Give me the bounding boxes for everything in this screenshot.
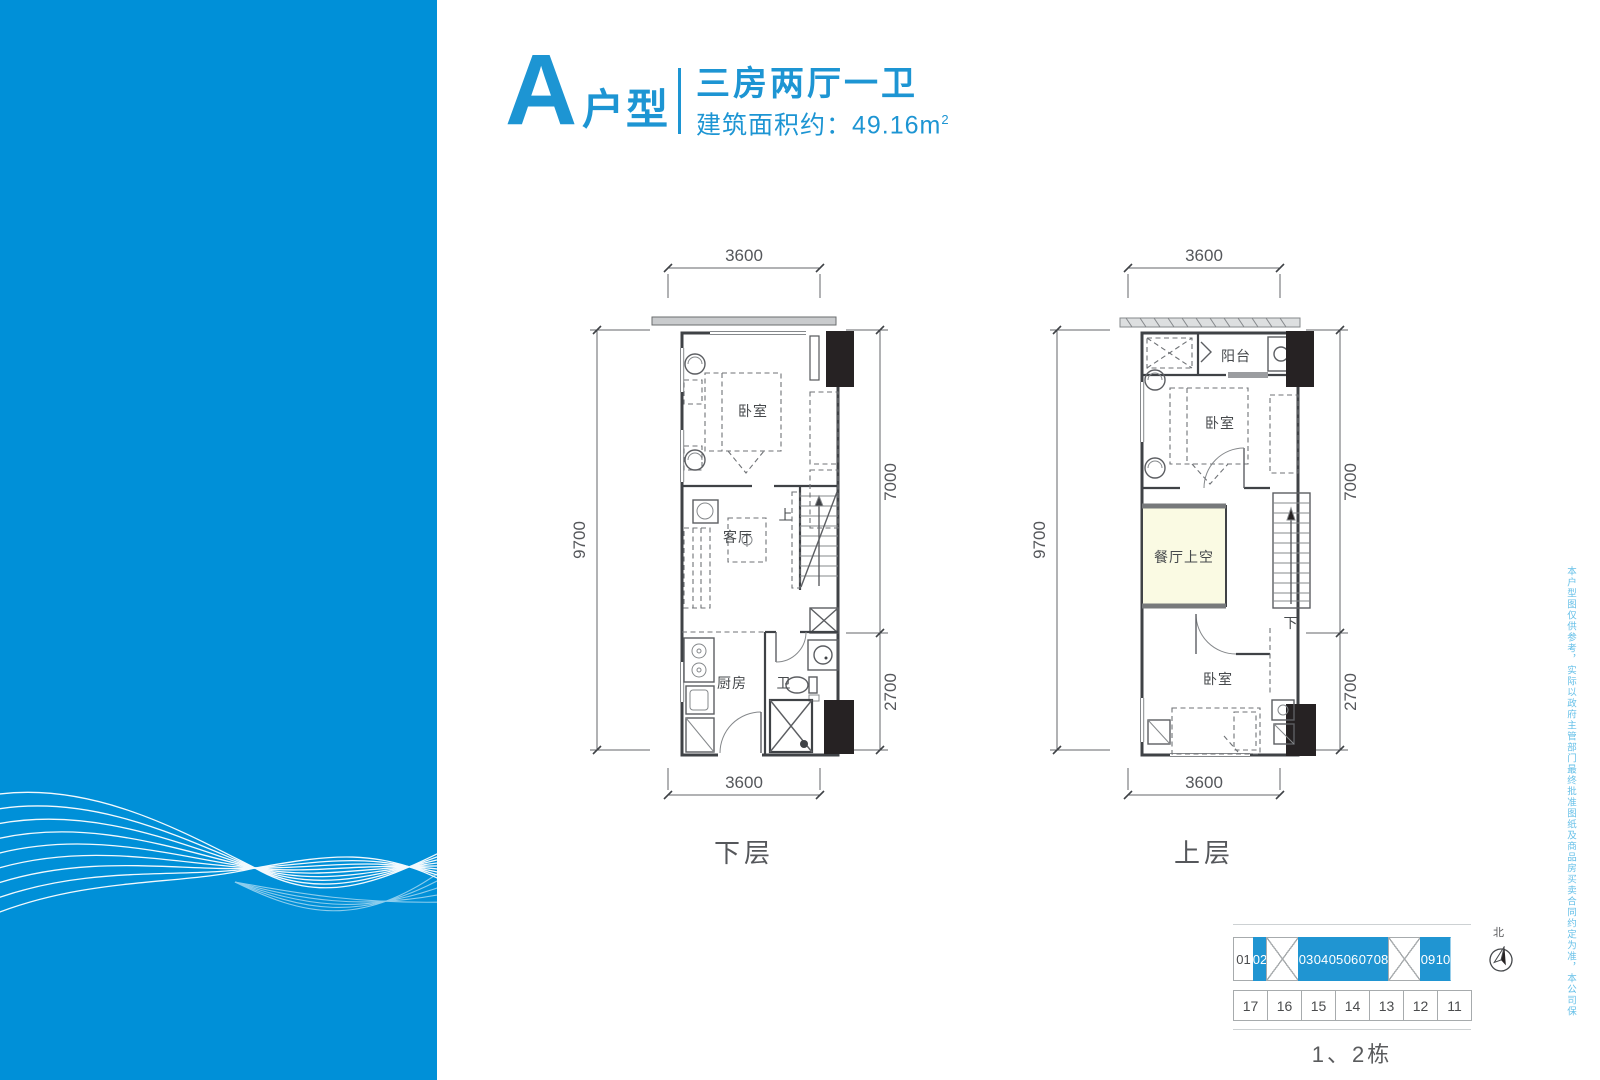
dim-bottom-lower: 3600 (664, 768, 824, 799)
keyplan-bottom-rule (1233, 1029, 1471, 1030)
shaft-bottom-right (1286, 704, 1316, 756)
unit-area: 建筑面积约：49.16m2 (696, 106, 950, 139)
plan-body-lower: 上 (652, 317, 854, 757)
dim-value: 2700 (881, 673, 900, 711)
keyplan-caption: 1、2栋 (1233, 1037, 1471, 1069)
unit-cell-14: 14 (1335, 990, 1370, 1021)
room-label-living: 客厅 (723, 529, 753, 545)
north-arrow: 北 (1479, 926, 1523, 982)
floor-label-upper: 上层 (1174, 838, 1234, 868)
bedroom-bottom-furniture (1148, 628, 1294, 754)
shaft-top-right (1286, 331, 1314, 387)
dim-right-upper: 7000 2700 (1306, 326, 1360, 754)
shaft-top-right (826, 331, 854, 387)
room-label-stair-up: 上 (779, 507, 794, 523)
room-label-kitchen: 厨房 (717, 675, 747, 691)
dim-left-upper: 9700 (1030, 326, 1110, 754)
dim-top-lower: 3600 (664, 246, 824, 298)
unit-cell-08: 08 (1373, 937, 1389, 981)
unit-cell-06: 06 (1343, 937, 1359, 981)
dim-right-lower: 7000 2700 (846, 326, 900, 754)
dim-value: 3600 (725, 773, 763, 792)
unit-cell-15: 15 (1301, 990, 1336, 1021)
shaft-bottom-right (824, 700, 854, 754)
unit-cell-03: 03 (1298, 937, 1314, 981)
disclaimer-vertical-text: 本户型图仅供参考，实际以政府主管部门最终批准图纸及商品房买卖合同约定为准，本公司… (1563, 566, 1577, 1018)
unit-cell-01: 01 (1233, 937, 1254, 981)
unit-cell-16: 16 (1267, 990, 1302, 1021)
dim-value: 3600 (1185, 246, 1223, 265)
unit-cell-12: 12 (1403, 990, 1438, 1021)
entry-door-leaf (810, 336, 819, 380)
area-superscript: 2 (941, 112, 949, 127)
dim-value: 7000 (1341, 463, 1360, 501)
duct-box (810, 608, 838, 633)
room-label-bath: 卫 (777, 675, 792, 691)
floor-plan-lower: 3600 9700 7000 2700 3600 (560, 230, 960, 870)
dim-value: 9700 (570, 521, 589, 559)
unit-cell-04: 04 (1313, 937, 1329, 981)
dim-value: 3600 (1185, 773, 1223, 792)
keyplan-top-rule (1233, 924, 1471, 925)
dim-value: 2700 (1341, 673, 1360, 711)
unit-cell-11: 11 (1437, 990, 1472, 1021)
eave (1120, 318, 1300, 327)
wave-decoration (0, 740, 437, 1080)
unit-cell-10: 10 (1435, 937, 1451, 981)
dim-value: 3600 (725, 246, 763, 265)
shower-box (770, 700, 812, 752)
stairs-down (1273, 493, 1310, 608)
unit-rooms-description: 三房两厅一卫 (696, 66, 918, 102)
stairs-up (800, 486, 838, 590)
canopy (652, 317, 836, 325)
dim-bottom-upper: 3600 (1124, 768, 1284, 799)
kitchen-fixtures (684, 638, 714, 752)
dim-value: 9700 (1030, 521, 1049, 559)
brand-side-panel (0, 0, 437, 1080)
unit-cell-07: 07 (1358, 937, 1374, 981)
dim-left-lower: 9700 (570, 326, 650, 754)
room-label-stair-down: 下 (1284, 615, 1299, 631)
dim-value: 7000 (881, 463, 900, 501)
plan-body-upper: 阳台 卧室 餐厅上空 (1120, 318, 1316, 758)
room-label-balcony: 阳台 (1221, 348, 1251, 364)
keyplan-x-cell (1266, 937, 1299, 981)
floor-plan-upper: 3600 9700 7000 2700 3600 (1020, 230, 1420, 870)
area-text: 建筑面积约：49.16m (696, 111, 941, 139)
room-label-bedroom-bottom: 卧室 (1203, 671, 1233, 687)
dim-top-upper: 3600 (1124, 246, 1284, 298)
building-key-plan: 01 02 03 04 05 06 07 08 09 10 17 16 15 1… (1233, 924, 1533, 1069)
unit-cell-05: 05 (1328, 937, 1344, 981)
keyplan-x-cell (1388, 937, 1421, 981)
unit-cell-02: 02 (1253, 937, 1267, 981)
unit-cell-13: 13 (1369, 990, 1404, 1021)
north-label: 北 (1493, 924, 1504, 940)
floor-label-lower: 下层 (714, 838, 774, 868)
unit-type-suffix: 户型 (582, 88, 670, 132)
room-label-bedroom: 卧室 (738, 403, 768, 419)
unit-type-letter: A (505, 40, 577, 140)
keyplan-bottom-row: 17 16 15 14 13 12 11 (1233, 990, 1533, 1021)
room-label-void: 餐厅上空 (1154, 549, 1214, 565)
room-label-bedroom-top: 卧室 (1205, 415, 1235, 431)
title-divider (678, 68, 681, 134)
bathroom-fixtures (786, 640, 838, 701)
unit-cell-09: 09 (1420, 937, 1436, 981)
unit-cell-17: 17 (1233, 990, 1268, 1021)
balcony (1142, 333, 1298, 378)
